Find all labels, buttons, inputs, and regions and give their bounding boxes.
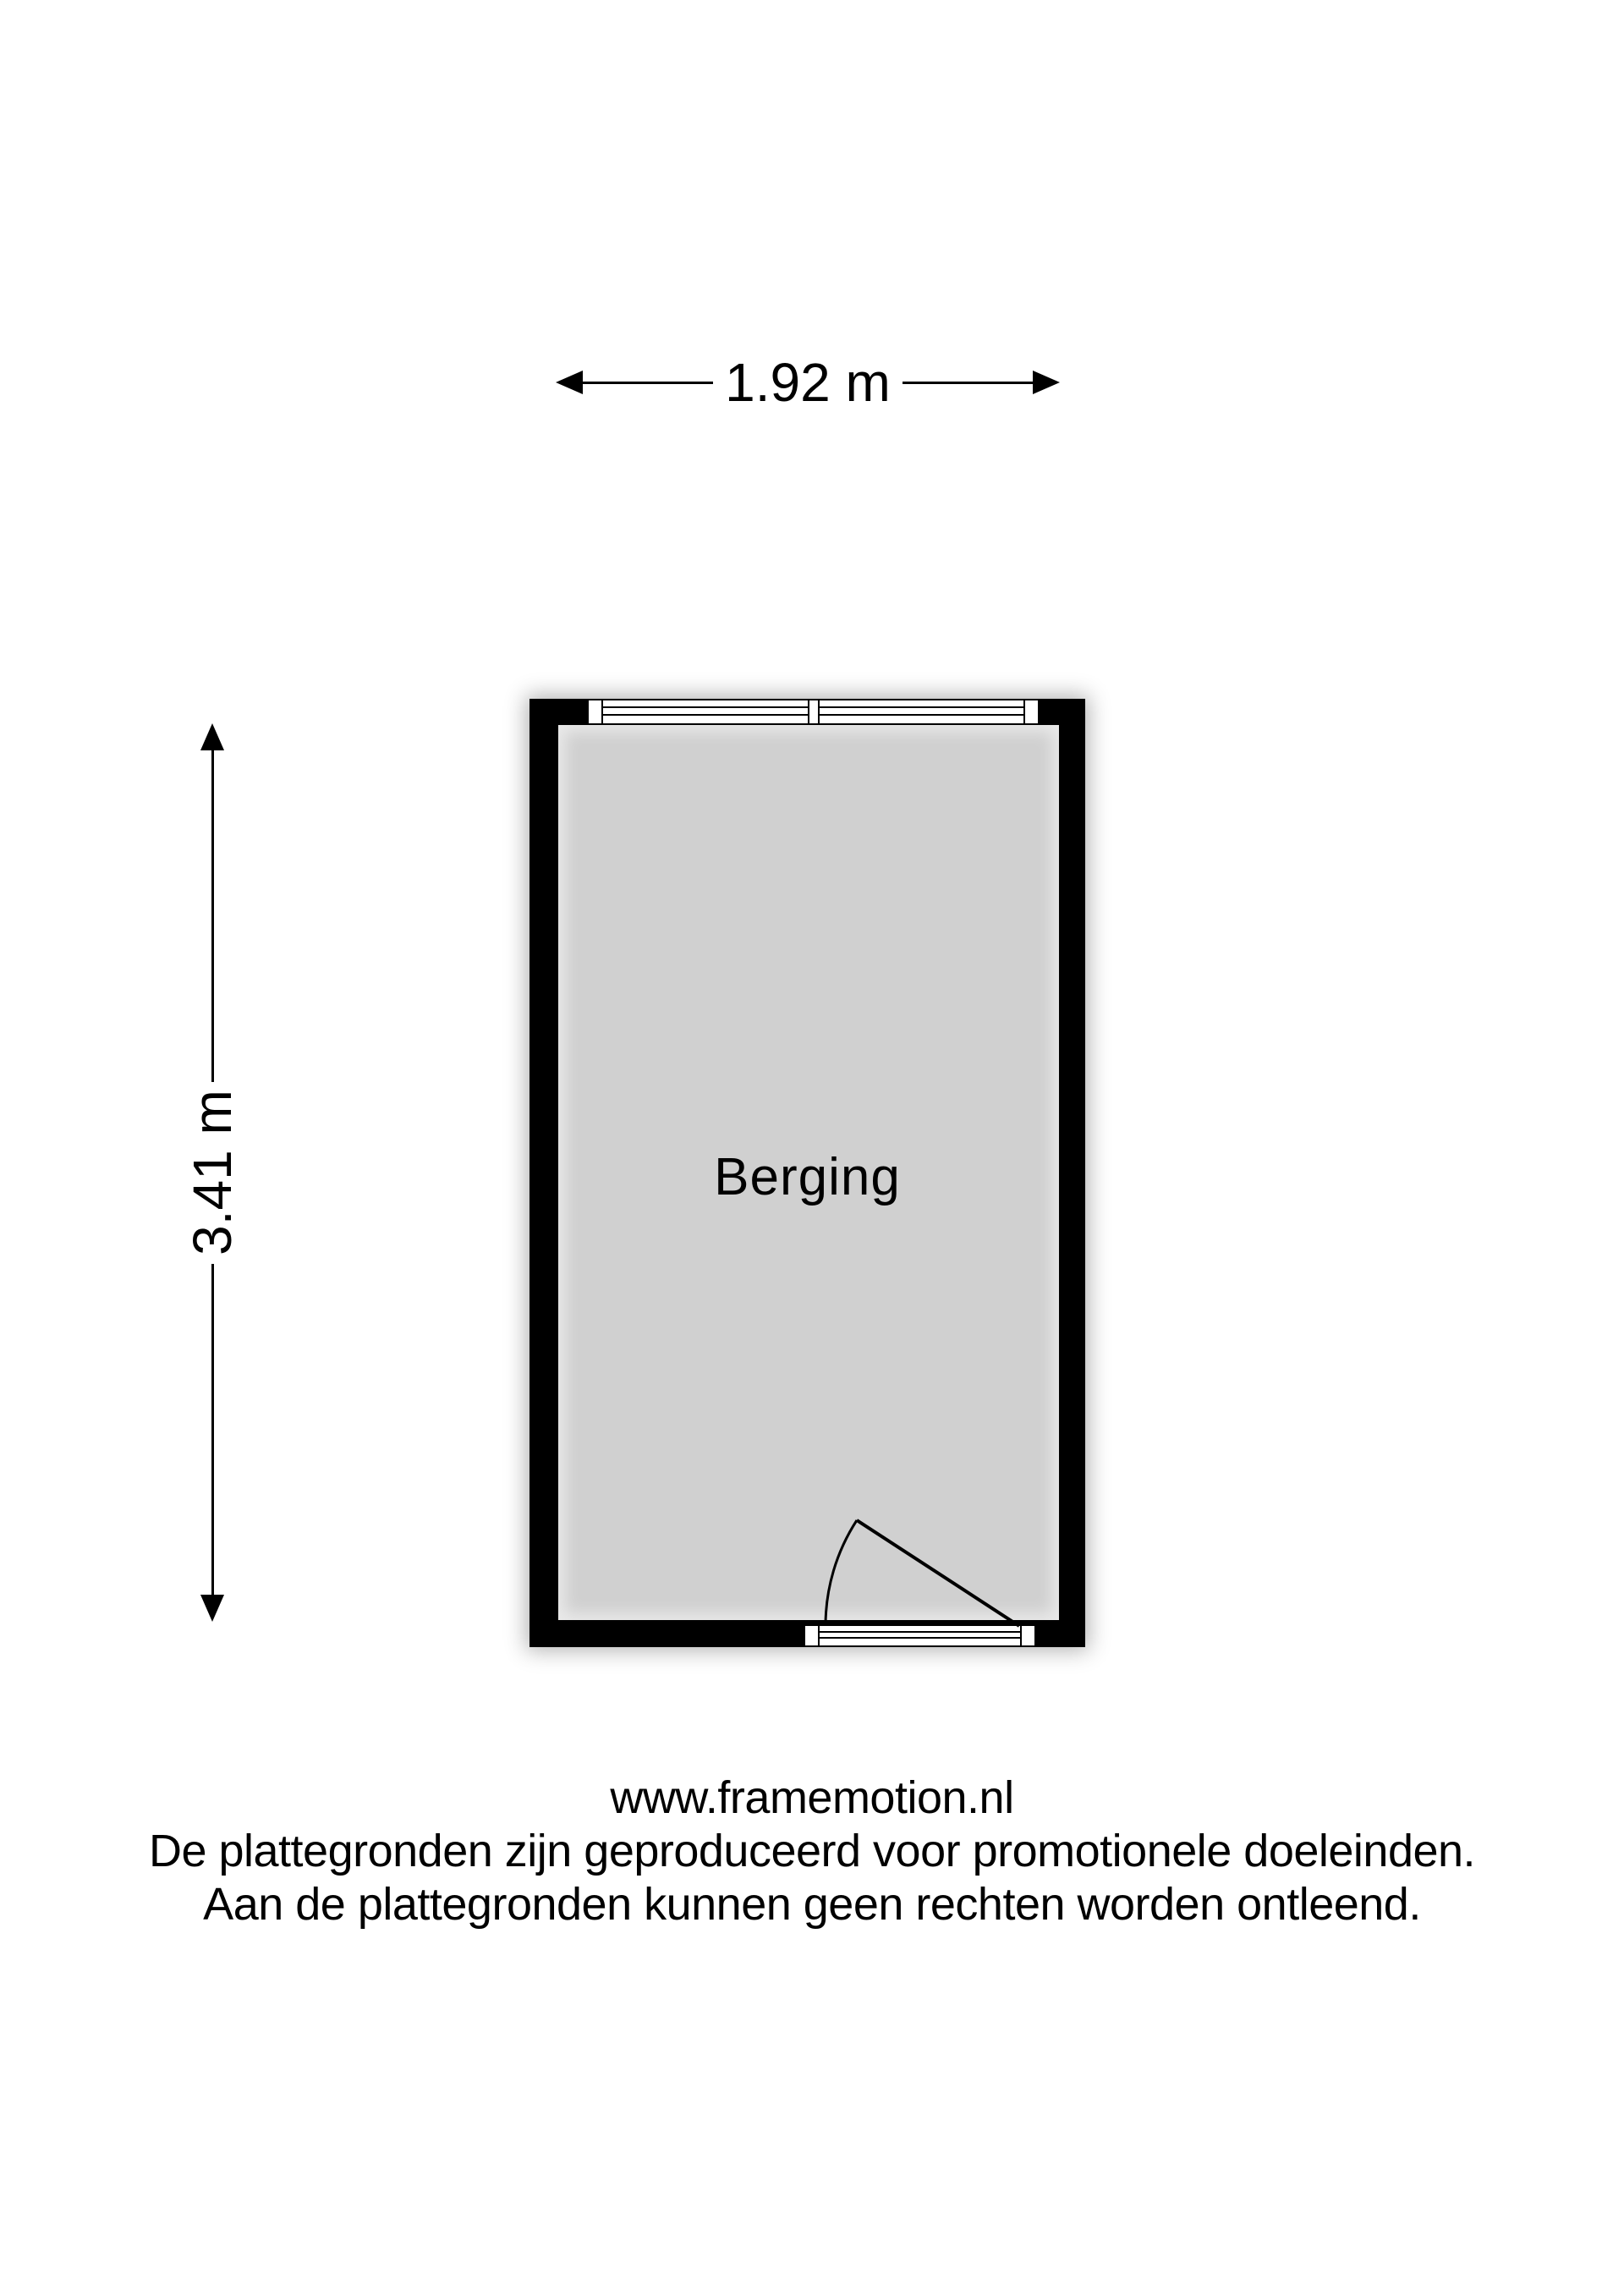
room-berging: Berging	[529, 699, 1085, 1647]
height-dimension-label: 3.41 m	[181, 1090, 244, 1255]
room-label: Berging	[529, 1151, 1085, 1204]
footer-website: www.framemotion.nl	[0, 1771, 1624, 1825]
width-dimension: 1.92 m	[556, 359, 1060, 406]
arrow-left-icon	[556, 371, 583, 394]
footer: www.framemotion.nl De plattegronden zijn…	[0, 1771, 1624, 1931]
arrow-right-icon	[1033, 371, 1060, 394]
arrow-up-icon	[200, 723, 224, 750]
footer-disclaimer-line2: Aan de plattegronden kunnen geen rechten…	[0, 1878, 1624, 1931]
dimension-line	[211, 750, 214, 1082]
height-dimension: 3.41 m	[189, 723, 236, 1622]
footer-disclaimer-line1: De plattegronden zijn geproduceerd voor …	[0, 1825, 1624, 1878]
dimension-line	[903, 382, 1033, 384]
width-dimension-label: 1.92 m	[713, 351, 903, 414]
arrow-down-icon	[200, 1595, 224, 1622]
dimension-line	[211, 1264, 214, 1596]
dimension-line	[583, 382, 713, 384]
height-dimension-label-box: 3.41 m	[189, 1082, 236, 1264]
floorplan-canvas: 1.92 m 3.41 m	[0, 0, 1624, 2296]
